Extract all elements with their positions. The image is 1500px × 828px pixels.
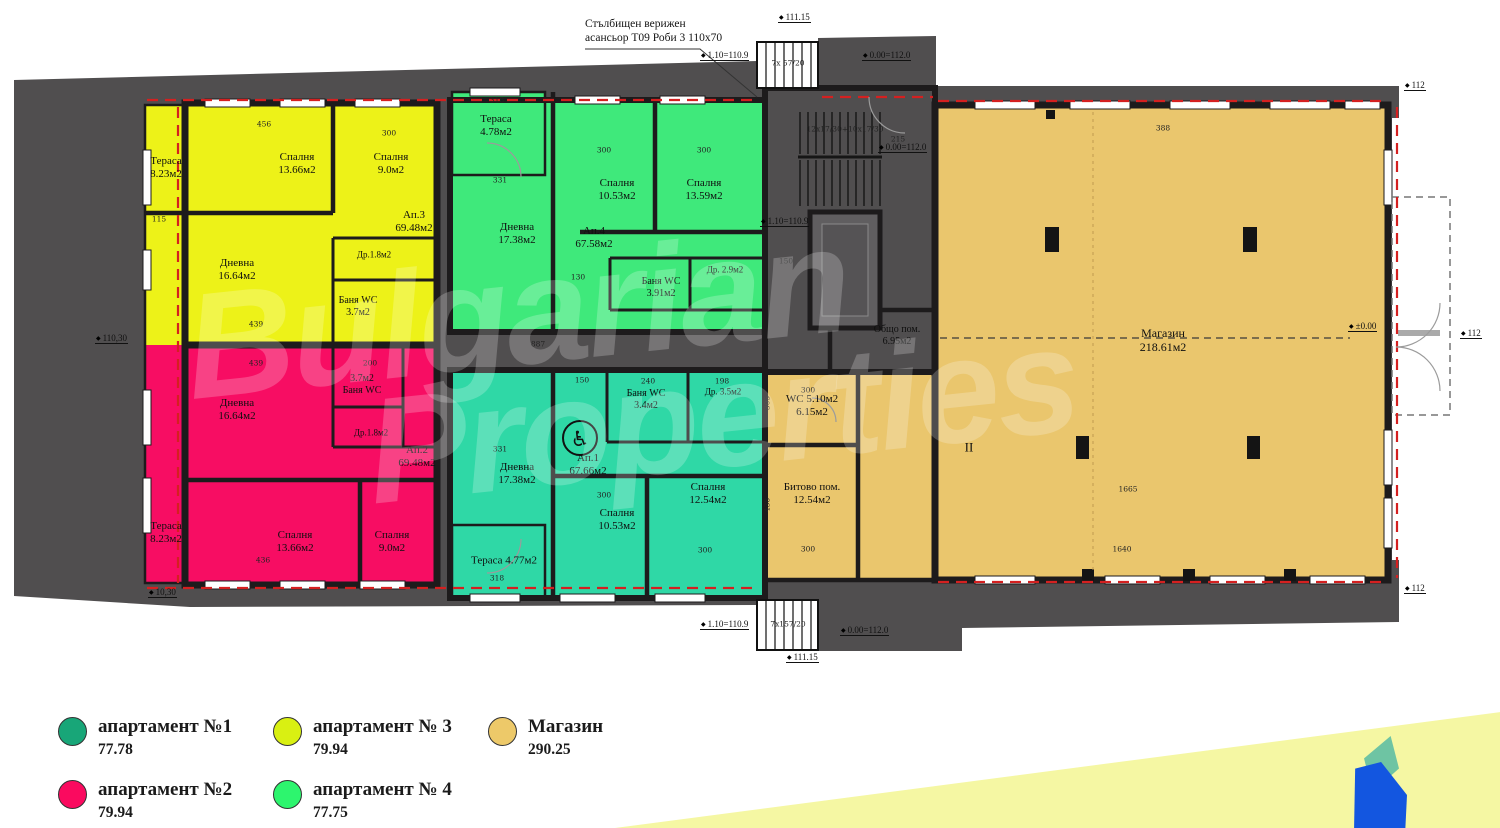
legend-swatch	[273, 780, 302, 809]
room-area: 10.53м2	[598, 520, 635, 533]
room-name: Баня WC	[642, 276, 681, 288]
room-name: Ап.1	[569, 452, 606, 465]
dimension-label: 318	[490, 574, 504, 583]
legend-item: апартамент № 3 79.94	[273, 716, 452, 759]
dimension-label: 436	[256, 556, 270, 565]
room-area: 10.53м2	[598, 190, 635, 203]
dimension-label: 300	[698, 546, 712, 555]
room-label: Спалня 9.0м2	[374, 151, 409, 177]
room-name: Ап.4	[575, 225, 612, 238]
room-label: Спалня 9.0м2	[375, 529, 410, 555]
room-name: Спалня	[278, 151, 315, 164]
elevation-mark: 0.00=112.0	[840, 625, 889, 636]
room-label: Др. 2.9м2	[707, 265, 744, 276]
legend-item: апартамент № 4 77.75	[273, 779, 452, 822]
room-area: 69.48м2	[398, 457, 435, 470]
room-name: Др.1.8м2	[354, 428, 388, 439]
room-area: 6.95м2	[874, 336, 921, 348]
legend-area-value: 77.75	[313, 804, 452, 822]
room-area: 12.54м2	[784, 494, 841, 507]
dimension-label: 331	[493, 445, 507, 454]
elevation-mark: 111.15	[786, 652, 819, 663]
dimension-label: 300	[597, 491, 611, 500]
room-name: Спалня	[374, 151, 409, 164]
elevation-mark: 1.10=110.9	[700, 619, 749, 630]
room-label: Тераса 8.23м2	[150, 155, 182, 181]
room-name: Дневна	[498, 461, 535, 474]
room-name: WC 5.10м2	[786, 393, 838, 406]
elevation-mark: 112	[1460, 328, 1482, 339]
dimension-label: 240	[641, 377, 655, 386]
elevation-mark: 10,30	[148, 587, 177, 598]
dimension-label: 200	[363, 359, 377, 368]
room-area: 3.7м2	[339, 307, 378, 319]
room-name: Спалня	[685, 177, 722, 190]
room-label: Тераса 4.78м2	[480, 113, 512, 139]
room-name: Др. 3.5м2	[705, 387, 742, 398]
room-label: Ап.2 69.48м2	[398, 444, 435, 470]
floor-plan-page: ♿ Стълбищен верижен асансьор Т09 Роби 3 …	[0, 0, 1500, 828]
room-label: Битово пом. 12.54м2	[784, 481, 841, 507]
room-area: 4.78м2	[480, 126, 512, 139]
room-label: WC 5.10м2 6.15м2	[786, 393, 838, 419]
room-label: Спалня 13.66м2	[276, 529, 313, 555]
legend-label: апартамент №2	[98, 779, 232, 801]
elevation-mark: ±0.00	[1348, 321, 1377, 332]
room-label: Ап.4 67.58м2	[575, 225, 612, 251]
room-name: Битово пом.	[784, 481, 841, 494]
room-name: Др.1.8м2	[357, 250, 391, 261]
room-name: Баня WC	[339, 295, 378, 307]
dimension-label: 300	[801, 386, 815, 395]
dimension-label: 1640	[1112, 545, 1131, 554]
room-area: 67.58м2	[575, 238, 612, 251]
room-area: 13.66м2	[278, 164, 315, 177]
svg-text:♿: ♿	[571, 427, 590, 451]
dimension-label: 456	[257, 120, 271, 129]
elevation-mark: 1.10=110.9	[700, 50, 749, 61]
room-label: Тераса 4.77м2	[471, 555, 537, 568]
dimension-label: 331	[493, 176, 507, 185]
room-label: Баня WC 3.91м2	[642, 276, 681, 300]
room-area: 16.64м2	[218, 410, 255, 423]
elevator-shaft	[810, 212, 880, 328]
room-label: Дневна 17.38м2	[498, 461, 535, 487]
room-name: Магазин	[1140, 326, 1187, 340]
room-label: 3.7м2 Баня WC	[343, 373, 382, 397]
elevator-note: Стълбищен верижен асансьор Т09 Роби 3 11…	[585, 17, 722, 45]
room-name: Тераса	[150, 520, 182, 533]
room-label: Тераса 8.23м2	[150, 520, 182, 546]
legend-swatch	[273, 717, 302, 746]
elevation-mark: 0.00=112.0	[862, 50, 911, 61]
dimension-label: 12x17/30+10x17/30	[806, 125, 883, 134]
room-label: Дневна 16.64м2	[218, 257, 255, 283]
legend-item: апартамент №1 77.78	[58, 716, 232, 759]
room-area: 13.59м2	[685, 190, 722, 203]
elevation-mark: 110,30	[95, 333, 128, 344]
room-name: Др. 2.9м2	[707, 265, 744, 276]
room-label: Ап.3 69.48м2	[395, 209, 432, 235]
dimension-label: 198	[715, 377, 729, 386]
legend-item: Магазин 290.25	[488, 716, 603, 759]
room-label: Баня WC 3.4м2	[627, 388, 666, 412]
room-area: 6.15м2	[786, 406, 838, 419]
room-name: Баня WC	[627, 388, 666, 400]
dimension-label: 7x157/20	[770, 620, 805, 629]
room-name: II	[965, 439, 974, 454]
dimension-label: 7x 57/20	[772, 59, 805, 68]
legend-swatch	[488, 717, 517, 746]
room-area: 17.38м2	[498, 474, 535, 487]
room-label: II	[965, 439, 974, 454]
elevator-note-line2: асансьор Т09 Роби 3 110x70	[585, 31, 722, 45]
dimension-label: 150	[779, 257, 793, 266]
elevator-note-line1: Стълбищен верижен	[585, 17, 722, 31]
dimension-label: 1665	[1118, 485, 1137, 494]
dimension-label: 305	[763, 396, 772, 410]
room-area: 17.38м2	[498, 234, 535, 247]
room-name: Дневна	[218, 397, 255, 410]
room-name: Тераса	[150, 155, 182, 168]
legend-area-value: 77.78	[98, 741, 232, 759]
legend-area-value: 79.94	[313, 741, 452, 759]
room-name: Спалня	[598, 177, 635, 190]
room-label: Спалня 10.53м2	[598, 507, 635, 533]
elevation-mark: 112	[1404, 583, 1426, 594]
room-label: Баня WC 3.7м2	[339, 295, 378, 319]
dimension-label: 300	[697, 146, 711, 155]
dimension-label: 130	[571, 273, 585, 282]
room-area: 8.23м2	[150, 533, 182, 546]
room-name: Спалня	[689, 481, 726, 494]
legend-label: Магазин	[528, 716, 603, 738]
room-area: 3.91м2	[642, 288, 681, 300]
dimension-label: 318	[490, 96, 504, 105]
room-area: 9.0м2	[374, 164, 409, 177]
room-label: Магазин 218.61м2	[1140, 326, 1187, 354]
room-area: 16.64м2	[218, 270, 255, 283]
legend-swatch	[58, 780, 87, 809]
dimension-label: 388	[1156, 124, 1170, 133]
dimension-label: 300	[382, 129, 396, 138]
room-label: Др.1.8м2	[354, 428, 388, 439]
legend-area-value: 290.25	[528, 741, 603, 759]
room-area: 69.48м2	[395, 222, 432, 235]
legend-item: апартамент №2 79.94	[58, 779, 232, 822]
room-name: Ап.2	[398, 444, 435, 457]
dimension-label: 887	[531, 340, 545, 349]
room-label: Ап.1 67.66м2	[569, 452, 606, 478]
room-name: Спалня	[276, 529, 313, 542]
room-label: Спалня 13.59м2	[685, 177, 722, 203]
room-area: 12.54м2	[689, 494, 726, 507]
room-label: Дневна 16.64м2	[218, 397, 255, 423]
room-name: Общо пом.	[874, 324, 921, 336]
dimension-label: 300	[597, 146, 611, 155]
dimension-label: 439	[249, 359, 263, 368]
elevation-mark: 0.00=112.0	[878, 142, 927, 153]
dimension-label: 300	[801, 545, 815, 554]
legend-label: апартамент №1	[98, 716, 232, 738]
room-name: Спалня	[375, 529, 410, 542]
dimension-label: 438	[763, 498, 772, 512]
dimension-label: 115	[152, 215, 166, 224]
legend-label: апартамент № 4	[313, 779, 452, 801]
room-name: Дневна	[498, 221, 535, 234]
room-area: 13.66м2	[276, 542, 313, 555]
legend-swatch	[58, 717, 87, 746]
elevation-mark: 1.10=110.9	[760, 216, 809, 227]
room-label: Спалня 12.54м2	[689, 481, 726, 507]
room-name: Спалня	[598, 507, 635, 520]
room-name: Тераса	[480, 113, 512, 126]
room-area: 67.66м2	[569, 465, 606, 478]
room-name: Дневна	[218, 257, 255, 270]
room-name: Ап.3	[395, 209, 432, 222]
room-label: Др. 3.5м2	[705, 387, 742, 398]
room-area: 9.0м2	[375, 542, 410, 555]
room-label: Дневна 17.38м2	[498, 221, 535, 247]
room-label: Спалня 13.66м2	[278, 151, 315, 177]
room-name: 3.7м2	[343, 373, 382, 385]
room-name: Тераса 4.77м2	[471, 555, 537, 568]
legend-area-value: 79.94	[98, 804, 232, 822]
dimension-label: 150	[575, 376, 589, 385]
dimension-label: 439	[249, 320, 263, 329]
room-area: 3.4м2	[627, 400, 666, 412]
elevation-mark: 112	[1404, 80, 1426, 91]
room-area: Баня WC	[343, 385, 382, 397]
room-label: Др.1.8м2	[357, 250, 391, 261]
room-area: 218.61м2	[1140, 340, 1187, 354]
room-area: 8.23м2	[150, 168, 182, 181]
elevation-mark: 111.15	[778, 12, 811, 23]
room-label: Общо пом. 6.95м2	[874, 324, 921, 348]
room-label: Спалня 10.53м2	[598, 177, 635, 203]
legend-label: апартамент № 3	[313, 716, 452, 738]
